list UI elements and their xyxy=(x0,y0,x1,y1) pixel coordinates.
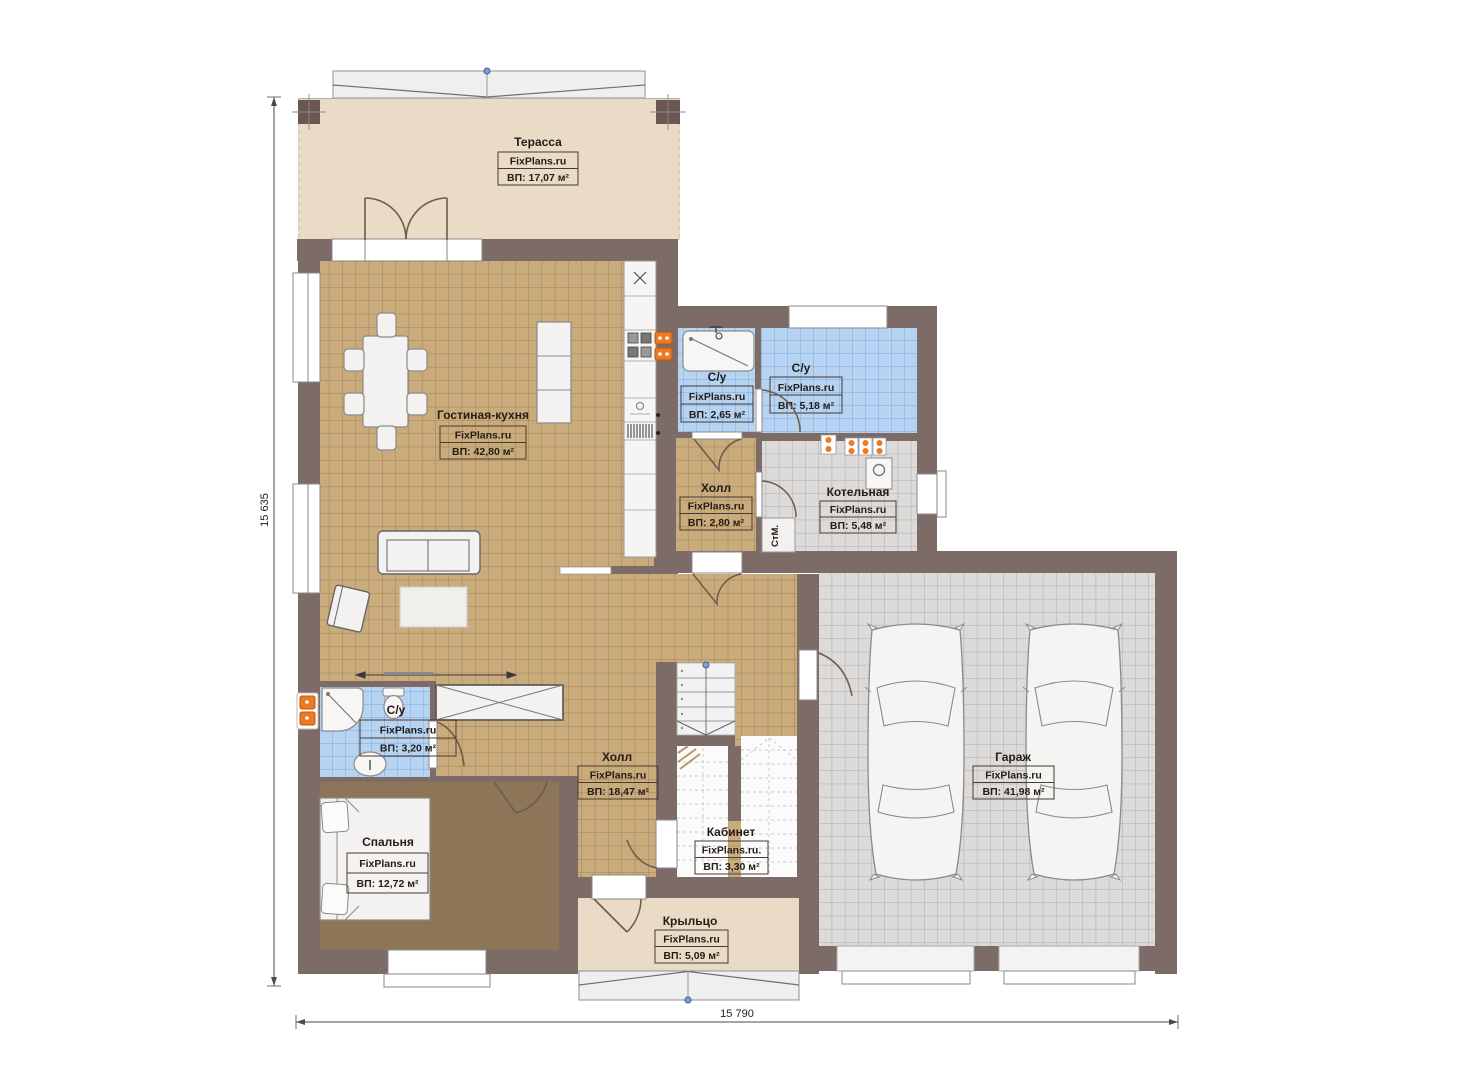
svg-text:Спальня: Спальня xyxy=(362,835,414,849)
svg-text:FixPlans.ru.: FixPlans.ru. xyxy=(702,845,762,857)
svg-text:15 635: 15 635 xyxy=(259,493,271,527)
svg-text:FixPlans.ru: FixPlans.ru xyxy=(689,391,746,403)
svg-text:ВП: 41,98 м²: ВП: 41,98 м² xyxy=(982,786,1045,798)
svg-text:С/у: С/у xyxy=(708,370,727,384)
svg-text:ВП: 18,47 м²: ВП: 18,47 м² xyxy=(587,786,650,798)
svg-text:СтМ.: СтМ. xyxy=(770,525,781,547)
svg-text:Гараж: Гараж xyxy=(995,750,1031,764)
svg-text:Холл: Холл xyxy=(602,750,632,764)
svg-text:Крыльцо: Крыльцо xyxy=(663,914,718,928)
svg-text:FixPlans.ru: FixPlans.ru xyxy=(359,858,416,870)
svg-text:Котельная: Котельная xyxy=(827,485,890,499)
svg-text:FixPlans.ru: FixPlans.ru xyxy=(455,430,512,442)
svg-text:ВП: 3,20 м²: ВП: 3,20 м² xyxy=(380,743,437,755)
svg-text:FixPlans.ru: FixPlans.ru xyxy=(380,725,437,737)
svg-text:ВП: 2,80 м²: ВП: 2,80 м² xyxy=(688,517,745,529)
svg-text:Кабинет: Кабинет xyxy=(707,825,756,839)
svg-text:ВП: 2,65 м²: ВП: 2,65 м² xyxy=(689,409,746,421)
svg-text:FixPlans.ru: FixPlans.ru xyxy=(663,934,720,946)
svg-text:ВП: 3,30 м²: ВП: 3,30 м² xyxy=(703,861,760,873)
svg-text:ВП: 12,72 м²: ВП: 12,72 м² xyxy=(356,878,419,890)
svg-text:Холл: Холл xyxy=(701,481,731,495)
svg-text:ВП: 17,07 м²: ВП: 17,07 м² xyxy=(507,172,570,184)
svg-text:С/у: С/у xyxy=(387,703,406,717)
svg-text:FixPlans.ru: FixPlans.ru xyxy=(985,770,1042,782)
svg-text:FixPlans.ru: FixPlans.ru xyxy=(830,504,887,516)
svg-text:ВП: 42,80 м²: ВП: 42,80 м² xyxy=(452,446,515,458)
svg-text:FixPlans.ru: FixPlans.ru xyxy=(590,770,647,782)
svg-text:С/у: С/у xyxy=(792,361,811,375)
svg-text:FixPlans.ru: FixPlans.ru xyxy=(510,156,567,168)
svg-text:15 790: 15 790 xyxy=(720,1008,754,1020)
svg-text:ВП: 5,48 м²: ВП: 5,48 м² xyxy=(830,520,887,532)
svg-text:FixPlans.ru: FixPlans.ru xyxy=(778,382,835,394)
svg-text:ВП: 5,09 м²: ВП: 5,09 м² xyxy=(663,950,720,962)
svg-text:Гостиная-кухня: Гостиная-кухня xyxy=(437,408,529,422)
svg-text:FixPlans.ru: FixPlans.ru xyxy=(688,501,745,513)
svg-text:Терасса: Терасса xyxy=(514,135,562,149)
